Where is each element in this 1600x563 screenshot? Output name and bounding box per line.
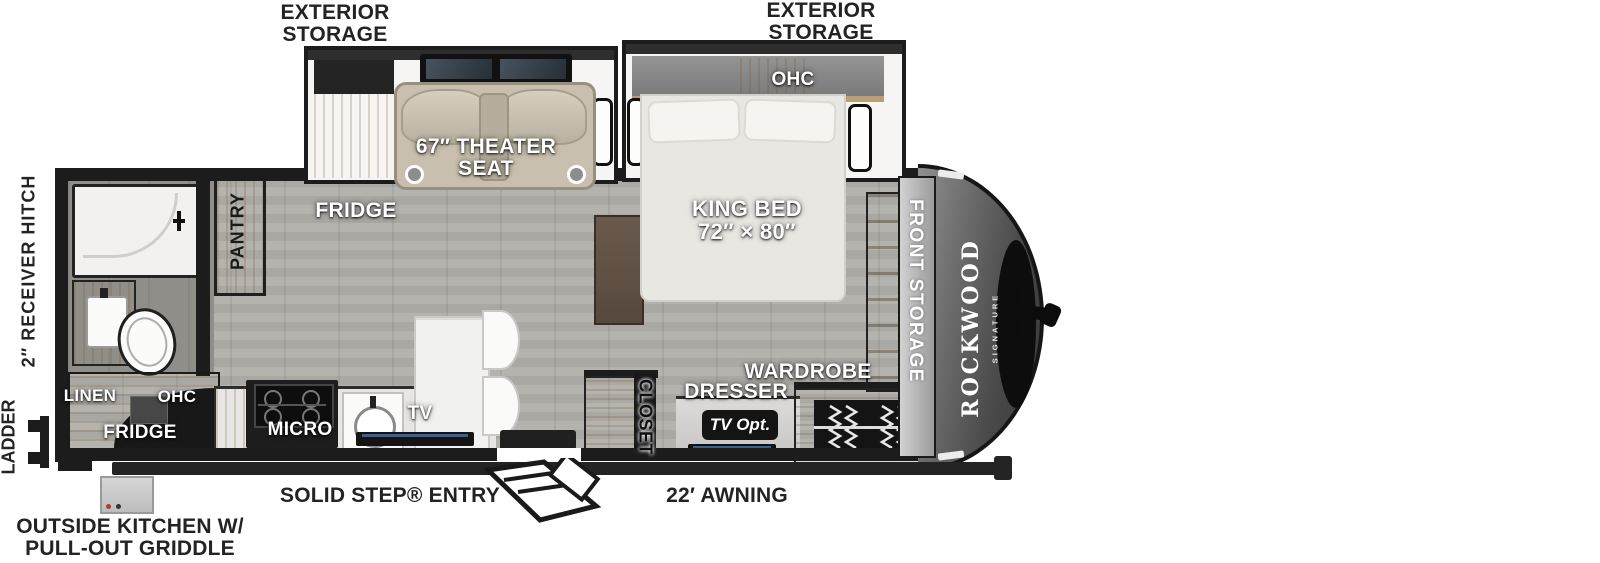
label-exterior-storage-right: EXTERIOR STORAGE xyxy=(767,0,876,44)
tv-optional-badge: TV Opt. xyxy=(702,410,778,440)
label-theater-seat: 67″ THEATER SEAT xyxy=(416,136,556,180)
ladder-icon xyxy=(28,452,42,464)
dinette-chair xyxy=(482,376,520,436)
kitchen-counter-end xyxy=(214,386,250,452)
bedroom-partition-wall xyxy=(594,215,644,325)
label-fridge-outside: FRIDGE xyxy=(103,423,177,443)
window-pane xyxy=(500,59,566,79)
refrigerator-cabinet xyxy=(314,60,394,178)
bathroom-wall xyxy=(196,181,210,376)
slideout-window xyxy=(420,54,572,84)
label-outside-kitchen: OUTSIDE KITCHEN W/ PULL-OUT GRIDDLE xyxy=(16,516,244,560)
label-king-bed: KING BED 72″ × 80″ xyxy=(692,197,802,243)
label-ohc-bedroom: OHC xyxy=(771,70,814,90)
window-pane xyxy=(426,59,492,79)
label-line: STORAGE xyxy=(767,22,876,44)
faucet-icon xyxy=(100,288,108,298)
pillow xyxy=(647,98,740,143)
label-line: EXTERIOR xyxy=(767,0,876,22)
entry-step-well xyxy=(500,430,576,450)
label-fridge-main: FRIDGE xyxy=(315,200,396,222)
label-line: EXTERIOR xyxy=(281,2,390,24)
toilet-seat-ring xyxy=(121,313,173,372)
label-exterior-storage-left: EXTERIOR STORAGE xyxy=(281,2,390,46)
label-line: SEAT xyxy=(416,158,556,180)
label-micro: MICRO xyxy=(268,420,333,440)
label-line: PULL-OUT GRIDDLE xyxy=(16,538,244,560)
label-wardrobe: WARDROBE xyxy=(744,361,871,383)
dinette-chair xyxy=(482,310,520,370)
ladder-icon xyxy=(28,420,42,432)
label-line: STORAGE xyxy=(281,24,390,46)
label-line: KING BED xyxy=(692,197,802,220)
shower-glass-door xyxy=(83,193,178,258)
label-line: 72″ × 80″ xyxy=(692,220,802,243)
side-window xyxy=(848,104,872,172)
outside-kitchen-griddle xyxy=(100,476,154,514)
tv-screen-glint xyxy=(362,434,468,437)
awning-bracket xyxy=(994,456,1012,480)
tv-optional-label: TV Opt. xyxy=(710,415,770,435)
tv-unit xyxy=(356,432,474,446)
pillow xyxy=(743,98,836,143)
shower xyxy=(72,184,206,278)
label-line: 67″ THEATER xyxy=(416,136,556,158)
label-linen: LINEN xyxy=(64,387,117,405)
floor-plan: TV Opt. xyxy=(0,0,1600,563)
label-ohc-rear: OHC xyxy=(158,388,197,406)
slideout-wall xyxy=(626,44,902,54)
label-awning: 22′ AWNING xyxy=(666,485,788,507)
griddle-knob-icon xyxy=(116,504,121,509)
faucet-icon xyxy=(370,396,376,408)
stove-grate-line xyxy=(258,404,326,406)
shower-head-icon xyxy=(177,211,181,231)
label-tv: TV xyxy=(408,404,433,424)
griddle-knob-icon xyxy=(106,504,111,509)
cupholder-icon xyxy=(567,165,586,184)
rear-wall xyxy=(55,168,68,462)
label-line: OUTSIDE KITCHEN W/ xyxy=(16,516,244,538)
closet-cabinet xyxy=(584,376,638,456)
label-solid-step-entry: SOLID STEP® ENTRY xyxy=(280,485,500,507)
top-wall xyxy=(55,168,309,181)
rear-bumper xyxy=(58,456,92,471)
entry-steps xyxy=(484,458,614,528)
refrigerator-top xyxy=(314,60,394,94)
label-dresser: DRESSER xyxy=(684,381,788,403)
